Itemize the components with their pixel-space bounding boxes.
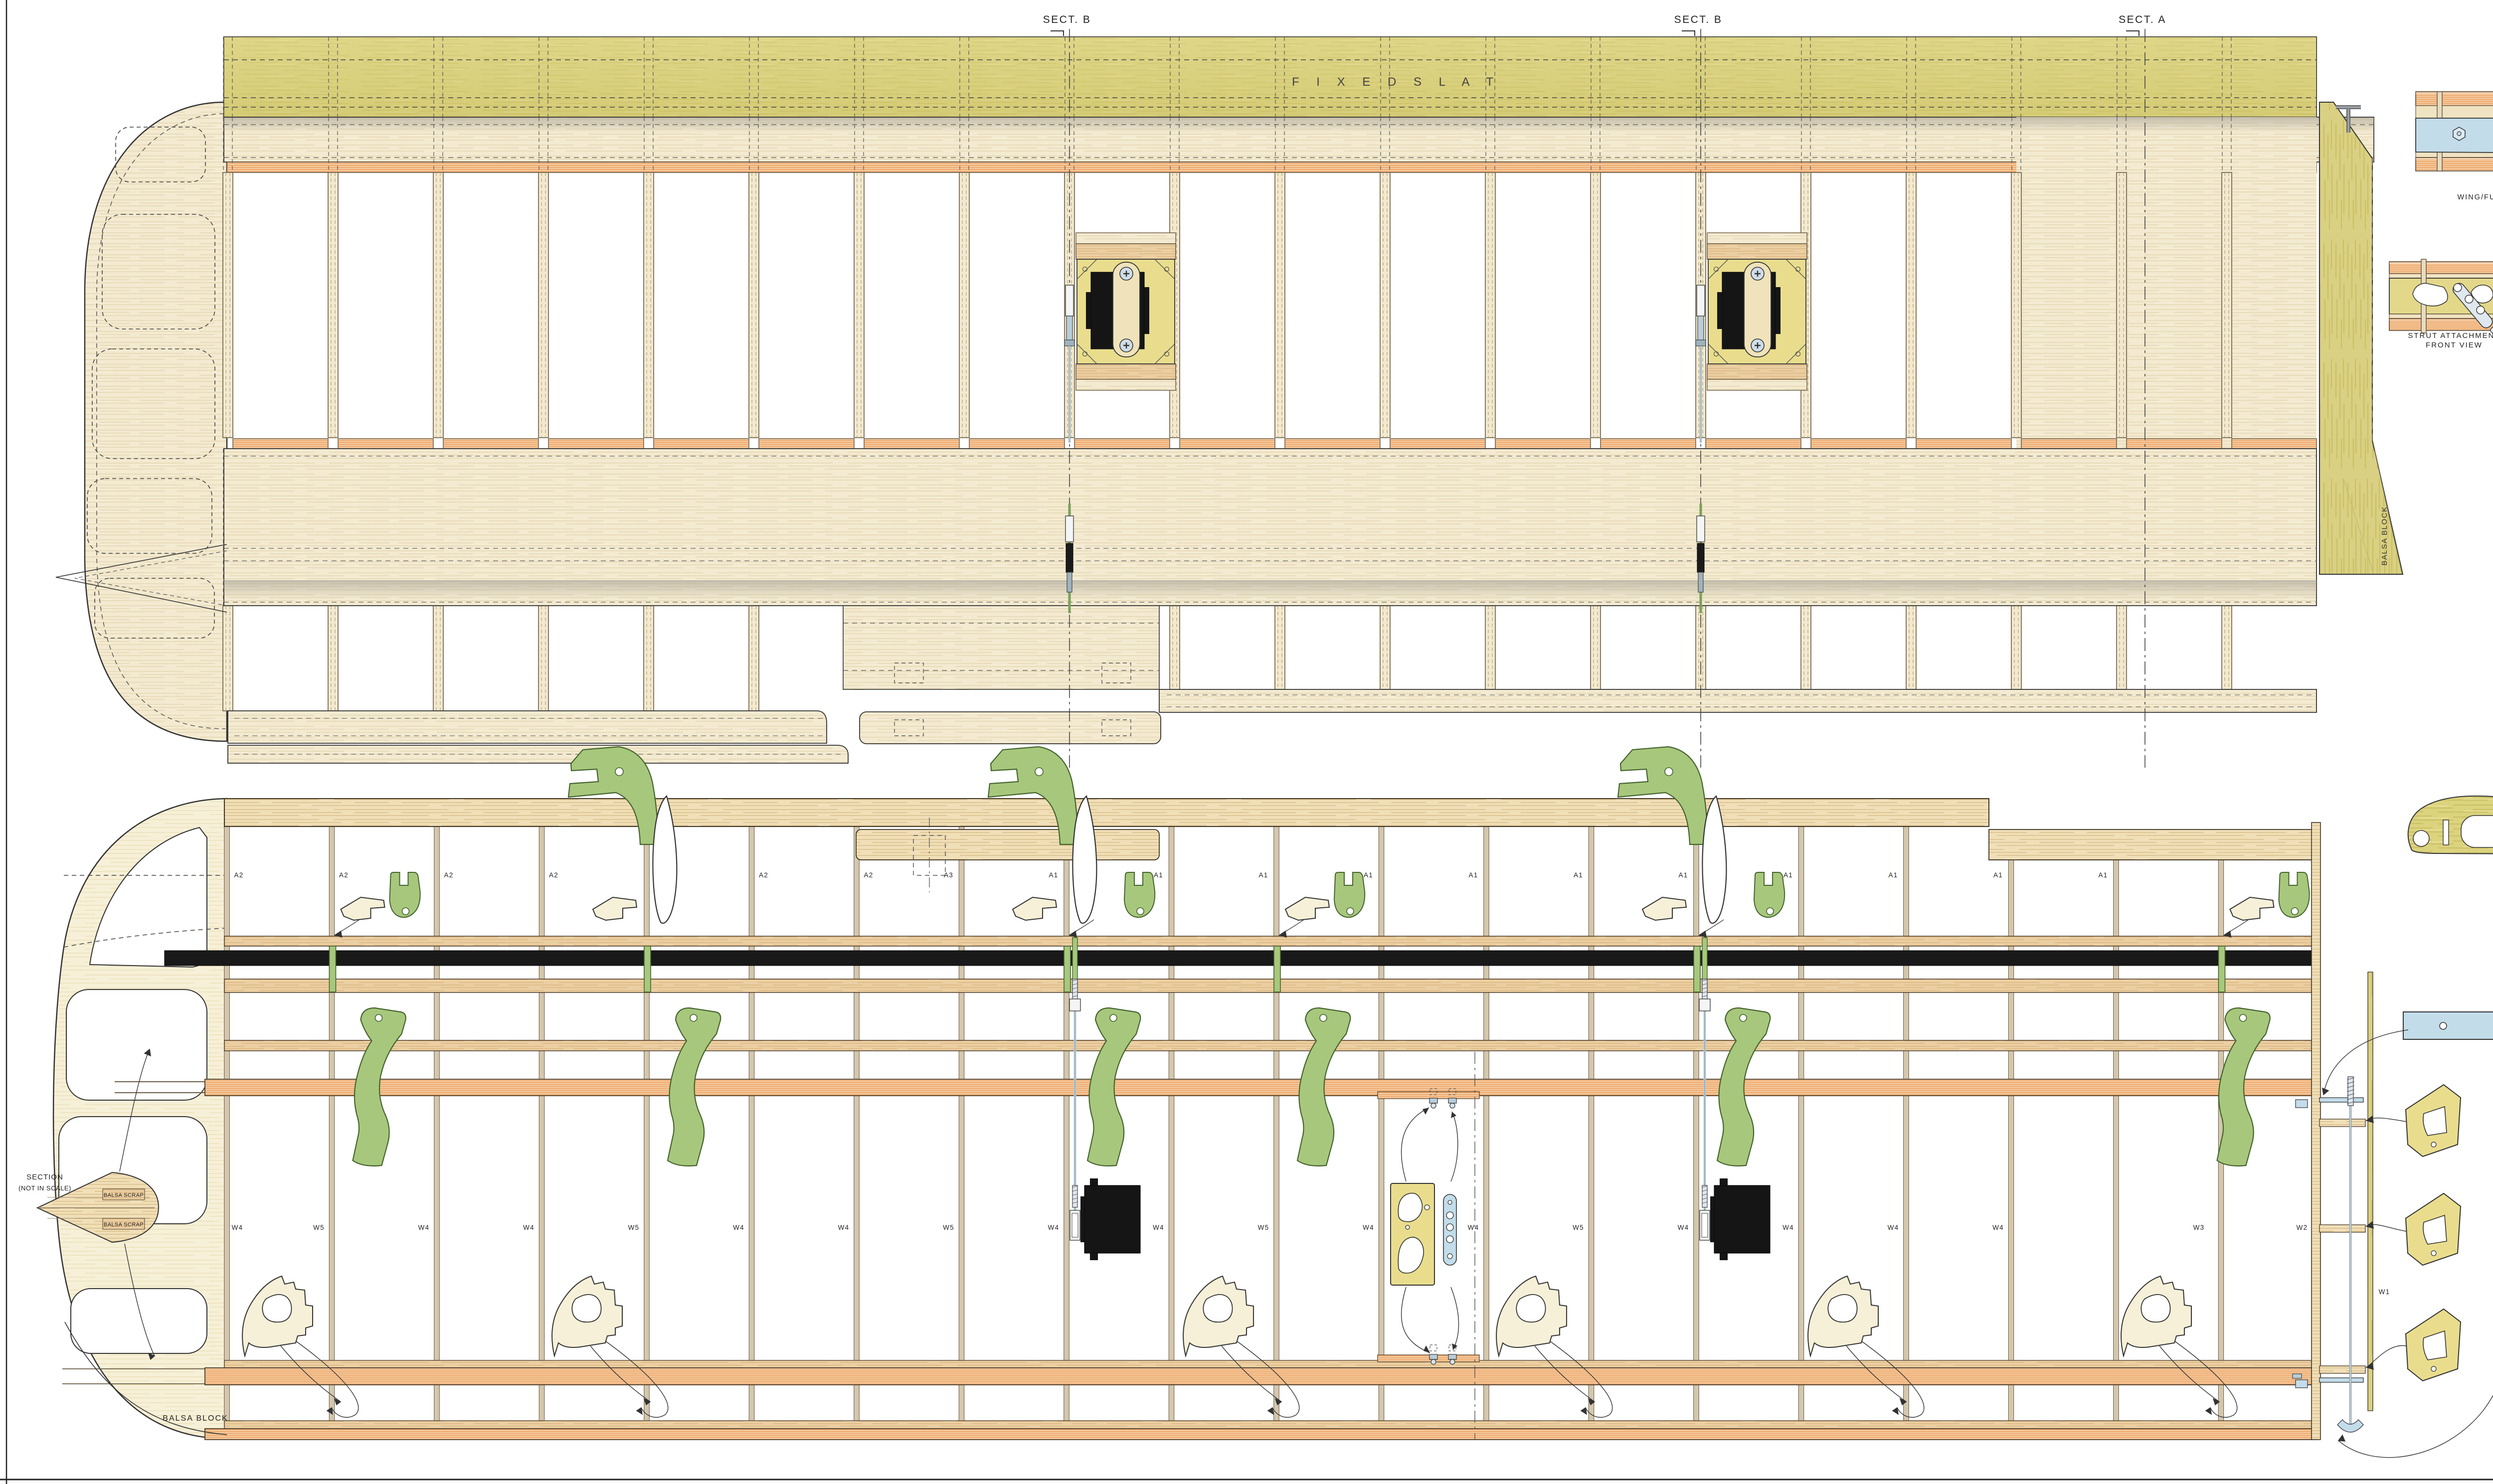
svg-text:W4: W4 (1992, 1224, 2004, 1231)
svg-text:A2: A2 (339, 871, 349, 879)
svg-text:A1: A1 (1049, 871, 1059, 879)
svg-text:W4: W4 (1888, 1224, 1899, 1231)
svg-text:A2: A2 (759, 871, 768, 879)
svg-text:A2: A2 (234, 871, 244, 879)
svg-text:W5: W5 (1258, 1224, 1269, 1231)
svg-text:W4: W4 (232, 1224, 243, 1231)
svg-text:W4: W4 (1153, 1224, 1164, 1231)
svg-text:A2: A2 (549, 871, 558, 879)
svg-text:A2: A2 (864, 871, 874, 879)
svg-text:BALSA BLOCK: BALSA BLOCK (163, 1414, 228, 1423)
svg-text:W4: W4 (1468, 1224, 1479, 1231)
svg-text:W4: W4 (418, 1224, 430, 1231)
svg-text:A3: A3 (944, 871, 953, 879)
svg-text:W4: W4 (1782, 1224, 1794, 1231)
svg-text:A1: A1 (2099, 871, 2108, 879)
svg-text:A1: A1 (1259, 871, 1268, 879)
svg-text:FRONT VIEW: FRONT VIEW (2426, 341, 2483, 349)
svg-text:BALSA SCRAP: BALSA SCRAP (104, 1192, 144, 1198)
svg-text:SECT. B: SECT. B (1674, 14, 1723, 25)
svg-text:SECT. A: SECT. A (2119, 14, 2166, 25)
svg-text:W5: W5 (1573, 1224, 1584, 1231)
svg-text:W4: W4 (838, 1224, 850, 1231)
svg-text:A2: A2 (444, 871, 454, 879)
svg-text:W4: W4 (1363, 1224, 1374, 1231)
svg-text:STRUT ATTACHMENT: STRUT ATTACHMENT (2408, 331, 2493, 340)
svg-text:SECT. B: SECT. B (1043, 14, 1091, 25)
svg-text:W5: W5 (628, 1224, 640, 1231)
svg-text:W4: W4 (1678, 1224, 1689, 1231)
svg-text:A1: A1 (1889, 871, 1898, 879)
svg-text:A1: A1 (1574, 871, 1583, 879)
svg-text:W4: W4 (523, 1224, 534, 1231)
svg-text:W5: W5 (943, 1224, 954, 1231)
svg-text:F I X E D S L A T: F I X E D S L A T (1292, 75, 1500, 89)
svg-text:A1: A1 (1154, 871, 1163, 879)
svg-text:BALSA SCRAP: BALSA SCRAP (104, 1222, 144, 1228)
svg-text:A1: A1 (1993, 871, 2003, 879)
svg-text:A1: A1 (1783, 871, 1793, 879)
svg-text:A1: A1 (1364, 871, 1373, 879)
svg-text:SECTION: SECTION (26, 1173, 63, 1181)
svg-text:W4: W4 (1048, 1224, 1060, 1231)
svg-text:W2: W2 (2297, 1224, 2308, 1231)
svg-text:W5: W5 (313, 1224, 325, 1231)
svg-text:A1: A1 (1679, 871, 1688, 879)
svg-text:W1: W1 (2379, 1288, 2390, 1296)
svg-text:WING/FUSELAGE ATTACHMENT: WING/FUSELAGE ATTACHMENT (2457, 193, 2493, 201)
svg-text:W4: W4 (733, 1224, 744, 1231)
svg-text:W3: W3 (2193, 1224, 2205, 1231)
svg-text:BALSA BLOCK: BALSA BLOCK (2380, 506, 2389, 565)
svg-text:A1: A1 (1469, 871, 1478, 879)
svg-text:(NOT IN SCALE): (NOT IN SCALE) (18, 1184, 71, 1192)
